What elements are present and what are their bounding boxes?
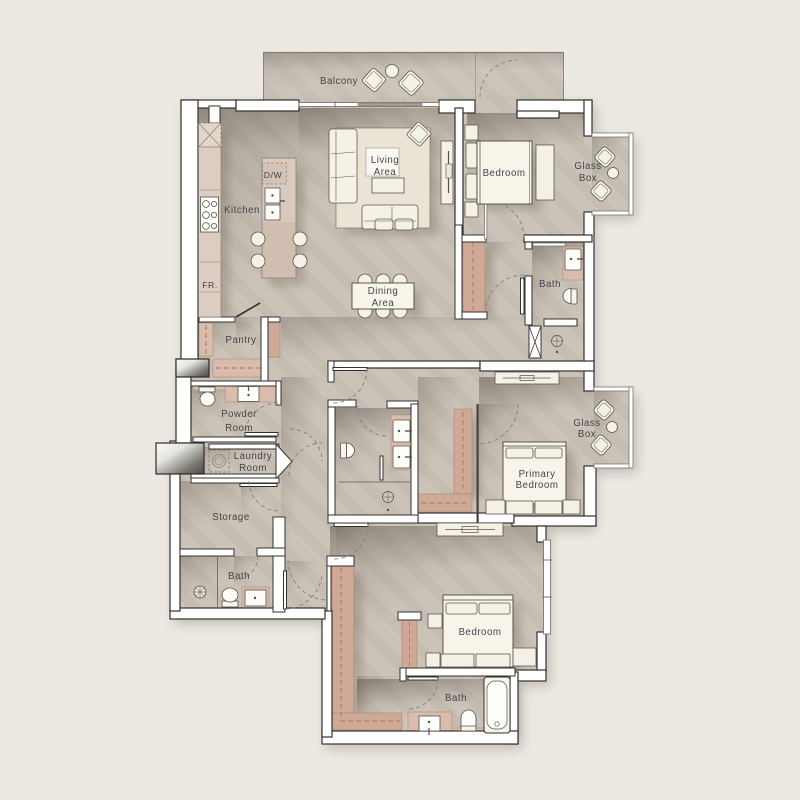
svg-text:Bath: Bath [445,693,467,704]
svg-text:Glass: Glass [573,418,600,429]
svg-text:Room: Room [225,423,253,434]
svg-text:Room: Room [239,463,267,474]
svg-text:Kitchen: Kitchen [224,205,260,216]
svg-text:Primary: Primary [519,469,556,480]
svg-text:Glass: Glass [574,161,601,172]
svg-text:Box: Box [579,173,597,184]
svg-text:Living: Living [371,155,399,166]
svg-text:Balcony: Balcony [320,76,358,87]
svg-text:D/W: D/W [264,170,283,180]
svg-text:Box: Box [578,429,596,440]
svg-text:Bath: Bath [539,279,561,290]
svg-text:Bedroom: Bedroom [516,480,559,491]
svg-text:Powder: Powder [221,409,257,420]
svg-text:Bedroom: Bedroom [459,627,502,638]
svg-text:Area: Area [372,298,395,309]
svg-text:Area: Area [374,167,397,178]
svg-text:Bedroom: Bedroom [483,168,526,179]
svg-text:Storage: Storage [212,512,249,523]
svg-text:FR.: FR. [202,280,218,290]
svg-text:Pantry: Pantry [226,335,257,346]
svg-text:Laundry: Laundry [234,451,273,462]
svg-text:Bath: Bath [228,571,250,582]
svg-text:Dining: Dining [368,286,398,297]
